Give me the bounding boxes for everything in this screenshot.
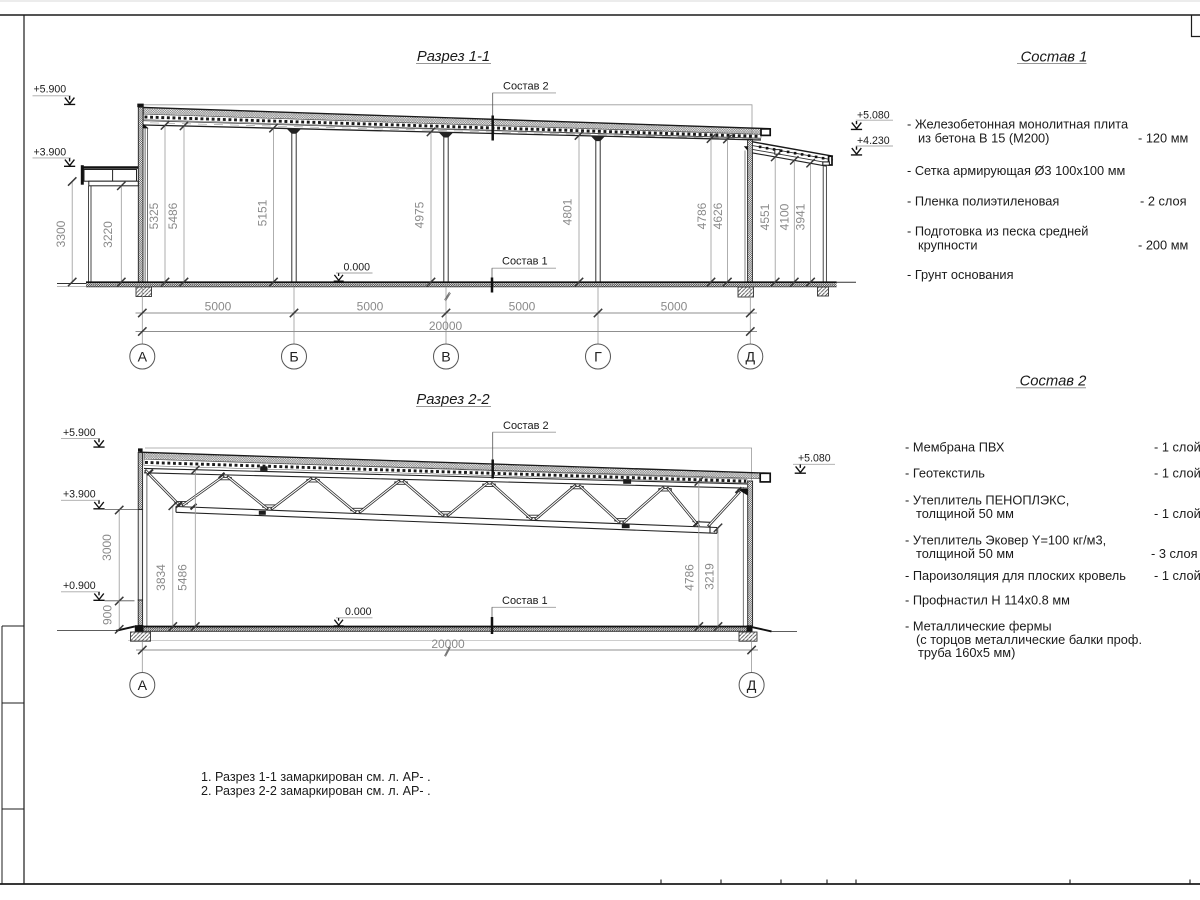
svg-text:1. Разрез 1-1 замаркирован см.: 1. Разрез 1-1 замаркирован см. л. АР- . [201,770,431,784]
svg-text:Разрез 1-1: Разрез 1-1 [417,49,490,65]
svg-text:- Мембрана ПВХ: - Мембрана ПВХ [905,440,1005,455]
svg-text:+4.230: +4.230 [857,135,890,147]
svg-text:- Пароизоляция для плоских кро: - Пароизоляция для плоских кровель [905,568,1126,583]
svg-text:Состав 2: Состав 2 [1020,374,1088,390]
svg-text:крупности: крупности [918,238,978,253]
svg-text:4786: 4786 [695,202,709,229]
svg-text:4100: 4100 [778,203,792,230]
svg-text:толщиной 50 мм: толщиной 50 мм [916,506,1014,521]
svg-text:Д: Д [747,678,757,694]
svg-text:- 1 слой: - 1 слой [1154,440,1200,455]
svg-text:+5.080: +5.080 [857,110,890,122]
svg-text:3834: 3834 [154,564,168,591]
svg-text:- Профнастил Н 114х0.8 мм: - Профнастил Н 114х0.8 мм [905,593,1070,608]
svg-text:Состав 2: Состав 2 [503,420,549,432]
svg-text:5000: 5000 [509,300,536,314]
svg-text:+5.900: +5.900 [34,84,67,96]
svg-text:3000: 3000 [100,534,114,561]
svg-text:Состав 1: Состав 1 [502,595,548,607]
svg-text:20000: 20000 [429,319,463,333]
svg-text:0.000: 0.000 [345,606,372,618]
svg-text:Разрез 2-2: Разрез 2-2 [416,392,490,408]
svg-text:5000: 5000 [357,300,384,314]
svg-text:А: А [138,678,148,694]
svg-text:900: 900 [101,605,115,625]
svg-text:4626: 4626 [711,202,725,229]
svg-text:4975: 4975 [413,201,427,228]
svg-text:+0.900: +0.900 [63,580,96,592]
svg-text:Состав 1: Состав 1 [1021,49,1088,65]
svg-text:Г: Г [594,349,602,365]
svg-text:5000: 5000 [661,300,688,314]
svg-text:+3.900: +3.900 [34,146,67,158]
svg-text:толщиной 50 мм: толщиной 50 мм [916,546,1014,561]
svg-text:2. Разрез 2-2 замаркирован см.: 2. Разрез 2-2 замаркирован см. л. АР- . [201,784,431,798]
svg-text:- 2 слоя: - 2 слоя [1140,194,1187,209]
svg-text:- Грунт основания: - Грунт основания [907,267,1014,282]
svg-text:3220: 3220 [101,221,115,248]
svg-text:- 200 мм: - 200 мм [1138,238,1188,253]
svg-text:0.000: 0.000 [344,262,371,274]
svg-text:- Пленка полиэтиленовая: - Пленка полиэтиленовая [907,194,1059,209]
svg-text:3941: 3941 [794,203,808,230]
svg-text:Состав 1: Состав 1 [502,256,548,268]
svg-text:- 120 мм: - 120 мм [1138,131,1188,146]
svg-text:5000: 5000 [205,300,232,314]
svg-text:Состав 2: Состав 2 [503,81,549,93]
svg-text:- Железобетонная монолитная п: - Железобетонная монолитная плита [907,117,1129,132]
svg-text:5325: 5325 [147,202,161,229]
svg-text:В: В [441,349,450,365]
svg-text:4801: 4801 [561,198,575,225]
svg-text:+3.900: +3.900 [63,488,96,500]
svg-text:3219: 3219 [702,563,716,590]
svg-text:из бетона В 15 (М200): из бетона В 15 (М200) [918,131,1049,146]
svg-text:- 1 слой: - 1 слой [1154,506,1200,521]
svg-text:труба 160х5 мм): труба 160х5 мм) [918,645,1015,660]
svg-text:Д: Д [745,349,755,365]
svg-text:3300: 3300 [54,220,68,247]
svg-text:+5.900: +5.900 [63,427,96,439]
svg-text:5151: 5151 [256,199,270,226]
svg-text:- Геотекстиль: - Геотекстиль [905,466,985,481]
svg-text:5486: 5486 [176,564,190,591]
svg-text:4786: 4786 [682,564,696,591]
svg-text:Б: Б [289,349,298,365]
svg-text:- Сетка армирующая Ø3 100х100: - Сетка армирующая Ø3 100х100 мм [907,163,1125,178]
svg-text:- 1 слой: - 1 слой [1154,568,1200,583]
svg-text:- Подготовка из песка средней: - Подготовка из песка средней [907,224,1088,239]
svg-text:- 1 слой: - 1 слой [1154,466,1200,481]
svg-text:5486: 5486 [166,202,180,229]
svg-text:4551: 4551 [758,203,772,230]
svg-text:А: А [138,349,148,365]
svg-text:- 3 слоя: - 3 слоя [1151,546,1198,561]
svg-text:+5.080: +5.080 [798,453,831,465]
